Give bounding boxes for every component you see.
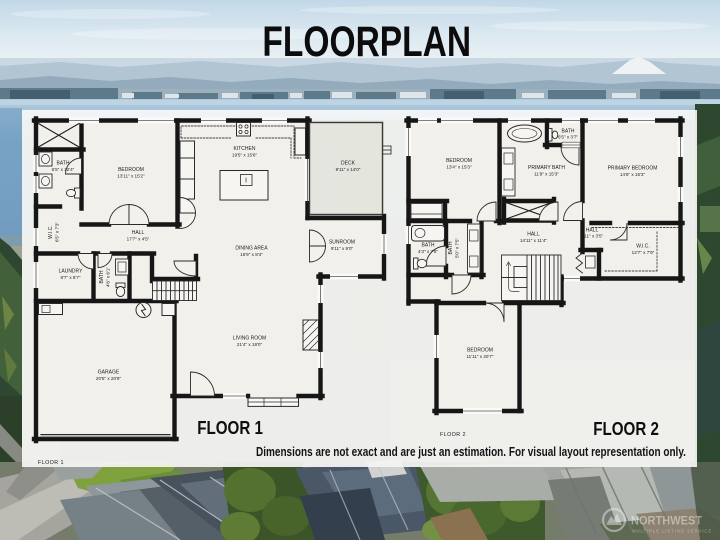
svg-text:PRIMARY BEDROOM: PRIMARY BEDROOM (608, 166, 658, 172)
svg-text:13'11" x 15'2": 13'11" x 15'2" (117, 174, 145, 179)
svg-text:4'6" x 6'1": 4'6" x 6'1" (106, 267, 111, 287)
svg-text:PRIMARY BATH: PRIMARY BATH (528, 165, 565, 171)
svg-text:BATH: BATH (99, 270, 105, 283)
svg-text:NORTHWEST: NORTHWEST (631, 515, 702, 527)
svg-text:21'4" x 19'0": 21'4" x 19'0" (237, 342, 263, 347)
svg-text:W.I.C.: W.I.C. (636, 244, 650, 250)
svg-text:19'5" x 15'6": 19'5" x 15'6" (232, 153, 258, 158)
svg-text:14'11" x 11'4": 14'11" x 11'4" (520, 238, 547, 243)
svg-text:16'9" x 8'4": 16'9" x 8'4" (240, 252, 263, 257)
svg-text:BATH: BATH (422, 243, 435, 249)
svg-text:11'11" x 20'7": 11'11" x 20'7" (466, 354, 493, 359)
svg-text:BEDROOM: BEDROOM (446, 158, 472, 164)
svg-text:DINING AREA: DINING AREA (235, 246, 268, 252)
svg-text:9'11" x 9'0": 9'11" x 9'0" (331, 246, 354, 251)
svg-text:DECK: DECK (341, 161, 356, 167)
svg-text:5'0" x 7'5": 5'0" x 7'5" (455, 238, 460, 258)
svg-text:FLOOR 1: FLOOR 1 (38, 460, 64, 466)
svg-text:BEDROOM: BEDROOM (467, 348, 493, 354)
svg-text:12'7" x 7'9": 12'7" x 7'9" (632, 250, 655, 255)
svg-text:14'6" x 15'3": 14'6" x 15'3" (620, 172, 646, 177)
svg-text:13'4" x 15'3": 13'4" x 15'3" (446, 165, 472, 170)
svg-text:20'5" x 20'9": 20'5" x 20'9" (96, 376, 122, 381)
svg-text:HALL: HALL (527, 232, 540, 238)
svg-text:11'9" x 15'3": 11'9" x 15'3" (534, 172, 559, 177)
svg-text:LAUNDRY: LAUNDRY (59, 269, 83, 275)
svg-text:FLOOR 2: FLOOR 2 (440, 432, 466, 438)
svg-text:KITCHEN: KITCHEN (234, 146, 256, 152)
svg-text:17'7" x 4'5": 17'7" x 4'5" (127, 237, 150, 242)
svg-text:BATH: BATH (57, 161, 70, 167)
svg-text:4'3" x 7'5": 4'3" x 7'5" (418, 249, 438, 254)
svg-text:GARAGE: GARAGE (98, 370, 120, 376)
svg-text:SUNROOM: SUNROOM (329, 240, 355, 246)
svg-text:HALL: HALL (132, 230, 145, 236)
svg-text:6'5" x 7'3": 6'5" x 7'3" (55, 222, 60, 242)
svg-text:9'11" x 14'0": 9'11" x 14'0" (336, 167, 361, 172)
svg-text:W.I.C.: W.I.C. (48, 225, 54, 239)
svg-text:BATH: BATH (448, 241, 454, 254)
svg-text:6'5" x 3'7": 6'5" x 3'7" (558, 135, 578, 140)
svg-text:8'7" x 8'7": 8'7" x 8'7" (60, 275, 80, 280)
svg-text:MULTIPLE LISTING SERVICE: MULTIPLE LISTING SERVICE (632, 529, 712, 534)
svg-text:6'5" x 12'4": 6'5" x 12'4" (52, 167, 75, 172)
svg-text:LIVING ROOM: LIVING ROOM (233, 336, 266, 342)
svg-text:5'11" x 3'5": 5'11" x 3'5" (581, 234, 604, 239)
svg-text:BEDROOM: BEDROOM (118, 167, 144, 173)
